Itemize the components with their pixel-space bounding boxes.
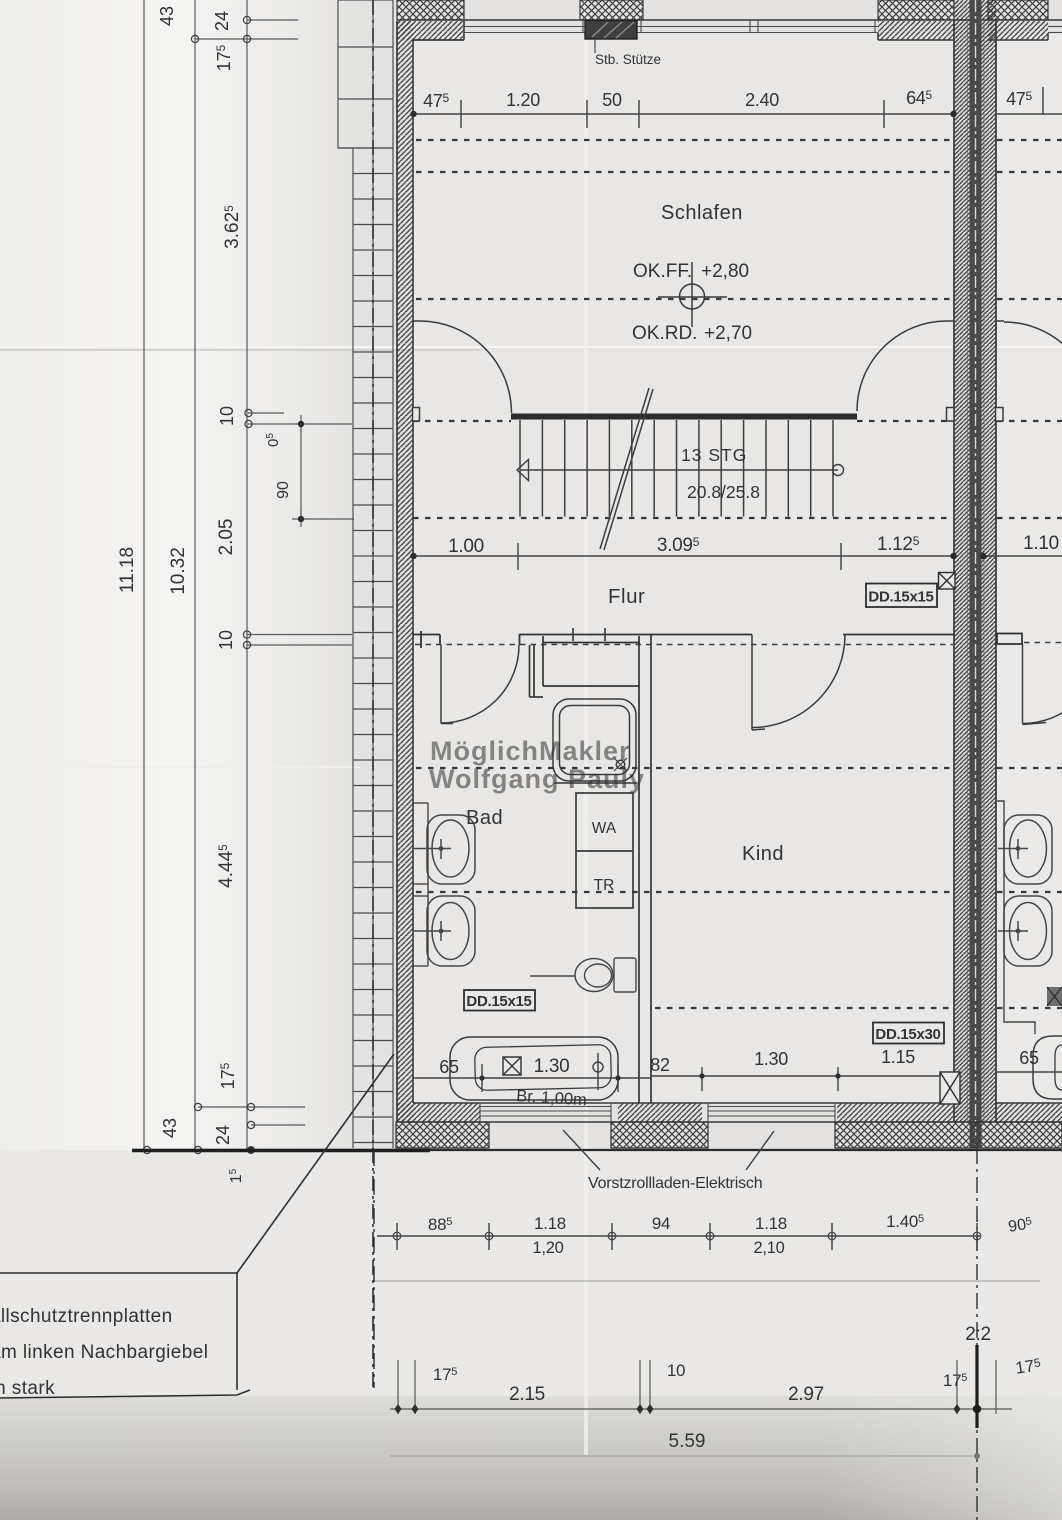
svg-text:WA: WA	[592, 820, 617, 837]
svg-text:24: 24	[212, 11, 232, 31]
svg-text:DD.15x15: DD.15x15	[868, 589, 933, 606]
svg-text:82: 82	[650, 1055, 670, 1075]
svg-text:5.59: 5.59	[669, 1431, 706, 1452]
svg-text:Schlafen: Schlafen	[661, 202, 743, 224]
svg-text:Flur: Flur	[608, 585, 645, 608]
svg-text:2.05: 2.05	[216, 519, 237, 556]
svg-text:1.30: 1.30	[754, 1049, 788, 1069]
svg-text:cm stark: cm stark	[0, 1378, 55, 1399]
svg-text:1.20: 1.20	[506, 90, 540, 110]
svg-text:2.40: 2.40	[745, 90, 779, 110]
svg-text:2.15: 2.15	[509, 1384, 545, 1405]
svg-text:Vorstzrollladen-Elektrisch: Vorstzrollladen-Elektrisch	[588, 1175, 762, 1192]
svg-text:am linken Nachbargiebel: am linken Nachbargiebel	[0, 1342, 208, 1363]
svg-text:11.18: 11.18	[117, 547, 138, 593]
svg-text:Wolfgang Pauly: Wolfgang Pauly	[429, 764, 645, 794]
svg-text:1,20: 1,20	[533, 1239, 564, 1257]
svg-text:1.10: 1.10	[1023, 533, 1059, 554]
svg-text:24: 24	[213, 1125, 233, 1145]
svg-text:Stb. Stütze: Stb. Stütze	[595, 52, 661, 67]
svg-text:65: 65	[439, 1057, 459, 1077]
svg-text:+2,70: +2,70	[704, 323, 752, 344]
svg-text:10.32: 10.32	[168, 547, 189, 595]
svg-text:1.15: 1.15	[881, 1047, 915, 1067]
svg-text:2:2: 2:2	[965, 1324, 991, 1345]
svg-text:1.18: 1.18	[534, 1214, 566, 1233]
svg-text:DD.15x30: DD.15x30	[875, 1026, 940, 1043]
svg-text:DD.15x15: DD.15x15	[466, 993, 531, 1010]
svg-text:2,10: 2,10	[754, 1239, 785, 1257]
svg-text:1.00: 1.00	[448, 536, 484, 557]
svg-text:10: 10	[667, 1361, 685, 1380]
svg-text:10: 10	[216, 630, 236, 650]
svg-text:OK.FF.: OK.FF.	[633, 261, 692, 282]
svg-text:Kind: Kind	[742, 843, 784, 865]
svg-text:10: 10	[217, 406, 237, 426]
svg-text:43: 43	[157, 6, 177, 26]
svg-text:43: 43	[160, 1118, 180, 1138]
svg-text:2.97: 2.97	[788, 1384, 824, 1405]
svg-text:1.18: 1.18	[755, 1214, 787, 1233]
svg-text:13 STG: 13 STG	[681, 445, 747, 465]
svg-text:TR: TR	[594, 877, 615, 894]
svg-text:Schallschutztrennplatten: Schallschutztrennplatten	[0, 1306, 173, 1327]
svg-text:1.30: 1.30	[534, 1056, 570, 1077]
svg-text:65: 65	[1019, 1048, 1039, 1068]
svg-text:+2,80: +2,80	[701, 261, 749, 282]
svg-text:50: 50	[602, 90, 622, 110]
svg-text:OK.RD.: OK.RD.	[632, 323, 697, 344]
svg-text:20.8/25.8: 20.8/25.8	[687, 482, 760, 502]
svg-text:94: 94	[652, 1214, 670, 1233]
svg-text:Bad: Bad	[466, 807, 503, 829]
svg-text:MöglichMakler: MöglichMakler	[430, 736, 631, 766]
svg-text:90: 90	[275, 481, 292, 499]
